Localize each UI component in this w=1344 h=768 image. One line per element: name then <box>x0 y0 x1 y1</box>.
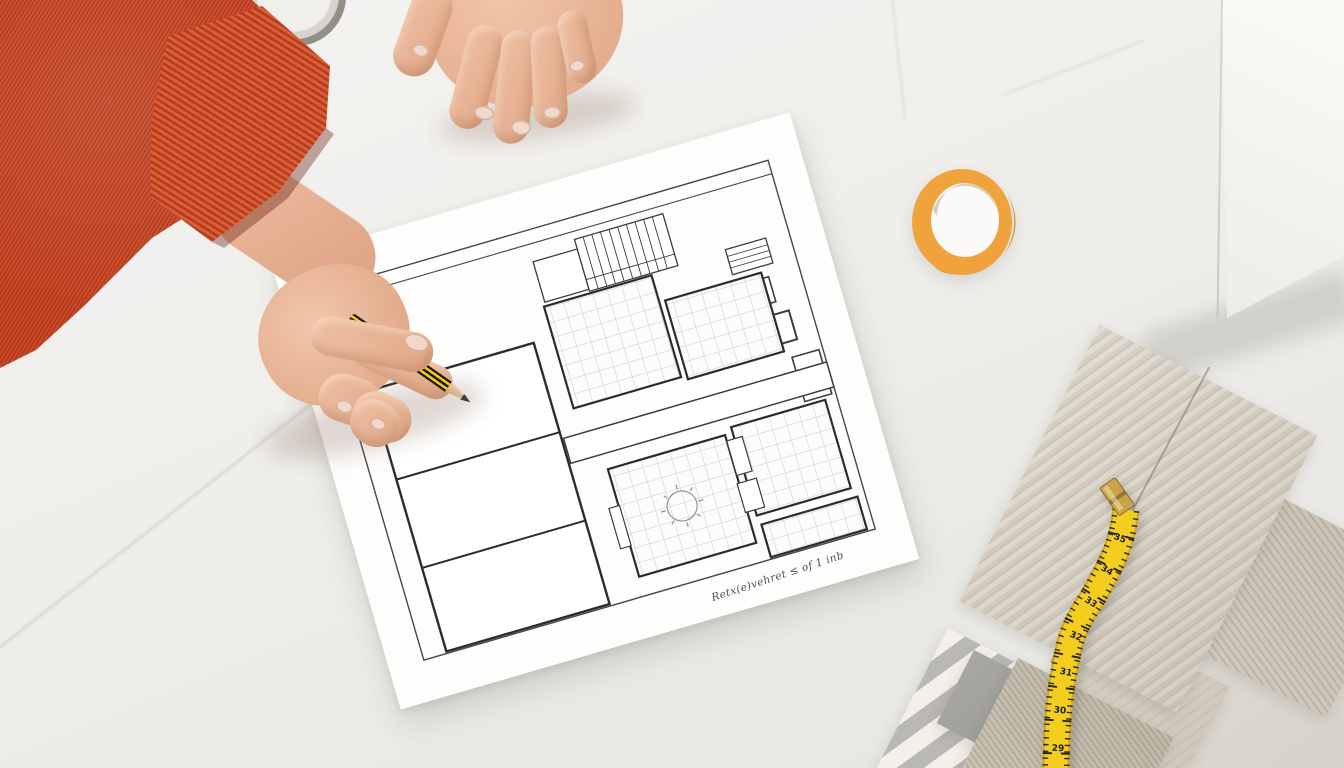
washi-tape-roll <box>908 166 1020 294</box>
white-box-edge <box>1217 0 1223 318</box>
svg-text:30: 30 <box>1053 705 1067 716</box>
svg-text:29: 29 <box>1052 744 1065 754</box>
table-seam <box>891 0 906 122</box>
measuring-tape: 35 34 33 32 31 30 29 <box>1000 460 1200 768</box>
table-seam <box>1002 40 1145 96</box>
measuring-tape-body <box>1056 510 1126 768</box>
photo-scene: Retx(e)vehret ≤ of 1 inb 35 34 33 32 31 … <box>0 0 1344 768</box>
tape-brass-clip <box>1100 477 1135 516</box>
